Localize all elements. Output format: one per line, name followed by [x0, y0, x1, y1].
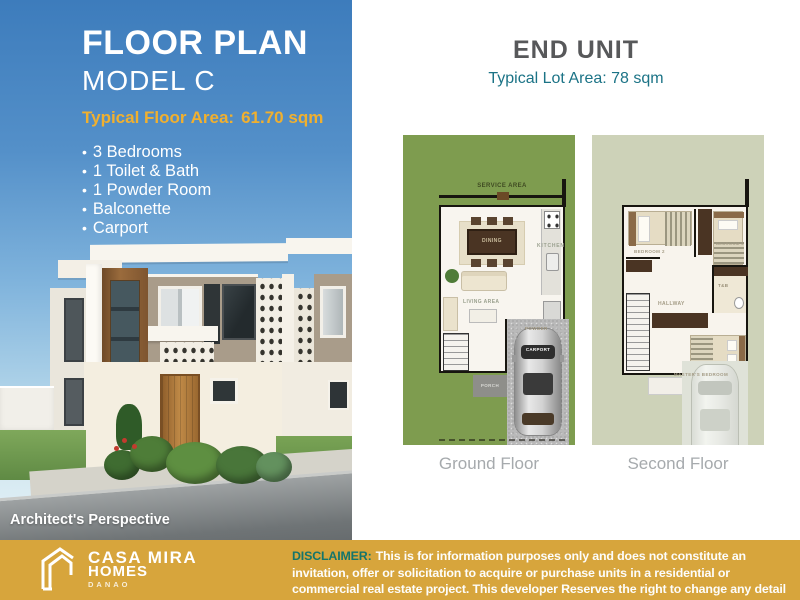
- house-perforated-screen: [294, 288, 314, 362]
- right-panel: END UNIT Typical Lot Area: 78 sqm SERVIC…: [352, 0, 800, 540]
- carport-gravel: CARPORT: [507, 319, 569, 445]
- wardrobe: [652, 313, 708, 328]
- car-mirror: [560, 355, 564, 362]
- left-panel: FLOOR PLAN MODEL C Typical Floor Area:61…: [0, 0, 352, 540]
- perimeter-fence: [0, 386, 54, 436]
- room-label-carport: CARPORT: [515, 347, 561, 352]
- feature-item: •3 Bedrooms: [82, 143, 323, 162]
- flyer-page: FLOOR PLAN MODEL C Typical Floor Area:61…: [0, 0, 800, 600]
- chair: [471, 259, 481, 267]
- feature-label: Balconette: [93, 200, 171, 218]
- house-logo-icon: [38, 545, 78, 593]
- feature-label: 1 Toilet & Bath: [93, 162, 199, 180]
- toilet: [734, 297, 744, 309]
- indoor-plant: [445, 269, 459, 283]
- property-line: [439, 439, 565, 441]
- brand-logo: CASA MIRA HOMES DANAO: [38, 545, 197, 593]
- service-gate: [497, 192, 509, 200]
- headboard: [714, 212, 744, 218]
- sofa: [461, 271, 507, 291]
- house-perforated-screen: [256, 278, 284, 370]
- room-label-tb: T&B: [718, 283, 728, 288]
- footer-bar: CASA MIRA HOMES DANAO DISCLAIMER:This is…: [0, 540, 800, 600]
- house-window: [64, 378, 84, 426]
- lot-area-subtitle: Typical Lot Area: 78 sqm: [352, 70, 800, 88]
- stairs: [626, 293, 650, 371]
- wall: [745, 179, 749, 207]
- car-roof: [523, 373, 553, 395]
- stairs: [443, 333, 469, 371]
- second-floor-plan: BEDROOM 2 BEDROOM 3 T&B HALLWAY: [592, 135, 764, 445]
- chair: [487, 259, 497, 267]
- room-label-master-bedroom: MASTER'S BEDROOM: [656, 372, 746, 377]
- feature-list: •3 Bedrooms •1 Toilet & Bath •1 Powder R…: [82, 143, 323, 238]
- feature-label: Carport: [93, 219, 148, 237]
- house-window: [328, 380, 349, 410]
- pillow: [718, 220, 738, 230]
- chair: [487, 217, 497, 225]
- porch: PORCH: [473, 375, 507, 397]
- model-name: MODEL C: [82, 65, 323, 97]
- feature-label: 1 Powder Room: [93, 181, 211, 199]
- headboard: [629, 212, 636, 246]
- room-label-service-area: SERVICE AREA: [439, 183, 565, 189]
- brand-location: DANAO: [88, 580, 197, 589]
- house-roof-neighbor: [286, 238, 352, 254]
- bullet: •: [82, 144, 87, 160]
- feature-item: •Balconette: [82, 200, 323, 219]
- feature-item: •1 Toilet & Bath: [82, 162, 323, 181]
- bush: [256, 452, 292, 482]
- floor-area: Typical Floor Area:61.70 sqm: [82, 108, 323, 128]
- car-roof: [700, 409, 730, 431]
- toilet-and-bath: T&B: [712, 267, 746, 313]
- room-label-bedroom2: BEDROOM 2: [634, 249, 665, 254]
- room-label-powder: POWDER: [525, 326, 548, 331]
- car-windshield: [698, 381, 732, 395]
- room-label-hallway: HALLWAY: [658, 301, 685, 307]
- bullet: •: [82, 163, 87, 179]
- car-mirror: [512, 355, 516, 362]
- stove: [544, 211, 560, 229]
- wall: [626, 257, 660, 259]
- floor-area-value: 61.70 sqm: [241, 108, 323, 127]
- blanket: [665, 212, 691, 246]
- unit-type-title: END UNIT: [352, 36, 800, 65]
- coffee-table: [469, 309, 497, 323]
- architects-perspective-caption: Architect's Perspective: [10, 512, 170, 528]
- end-unit-header: END UNIT Typical Lot Area: 78 sqm: [352, 36, 800, 88]
- kitchen-sink: [546, 253, 559, 271]
- wall: [694, 209, 696, 257]
- house-window: [222, 284, 256, 340]
- pillow: [727, 340, 737, 351]
- room-label-kitchen: KITCHEN: [537, 243, 565, 249]
- feature-item: •Carport: [82, 219, 323, 238]
- house-balconette: [144, 326, 218, 341]
- bed: [628, 211, 692, 245]
- second-floor-interior: BEDROOM 2 BEDROOM 3 T&B HALLWAY: [622, 205, 748, 375]
- floor-plan-info: FLOOR PLAN MODEL C Typical Floor Area:61…: [82, 26, 323, 238]
- bed: [713, 211, 743, 265]
- flower: [114, 446, 119, 451]
- ground-floor-label: Ground Floor: [403, 454, 575, 474]
- room-label-porch: PORCH: [473, 383, 507, 388]
- pillow: [638, 216, 650, 242]
- wardrobe: [698, 209, 712, 255]
- house-window: [210, 378, 238, 404]
- disclaimer: DISCLAIMER:This is for information purpo…: [292, 548, 794, 600]
- cabinet: [626, 260, 652, 272]
- room-label-living-area: LIVING AREA: [463, 299, 499, 305]
- feature-item: •1 Powder Room: [82, 181, 323, 200]
- ground-floor-plan: SERVICE AREA DINING KITCHEN: [403, 135, 575, 445]
- chair: [503, 259, 513, 267]
- brand-sub: HOMES: [88, 565, 197, 579]
- disclaimer-label: DISCLAIMER:: [292, 549, 372, 563]
- car-rear: [522, 413, 554, 425]
- second-floor-label: Second Floor: [592, 454, 764, 474]
- bullet: •: [82, 201, 87, 217]
- bullet: •: [82, 182, 87, 198]
- chair: [503, 217, 513, 225]
- room-label-dining: DINING: [467, 238, 517, 244]
- flower: [122, 438, 127, 443]
- armchair: [443, 297, 458, 331]
- page-title: FLOOR PLAN: [82, 26, 323, 62]
- house-window: [64, 298, 84, 362]
- car-top-view: CARPORT: [515, 329, 561, 435]
- car-top-view-faded: [692, 365, 738, 445]
- bullet: •: [82, 220, 87, 236]
- brand-text: CASA MIRA HOMES DANAO: [88, 550, 197, 589]
- house-render: [0, 238, 352, 540]
- chair: [471, 217, 481, 225]
- cabinet: [714, 267, 748, 276]
- feature-label: 3 Bedrooms: [93, 143, 182, 161]
- house-window: [320, 286, 346, 338]
- house-pier: [282, 274, 294, 370]
- room-label-bedroom3: BEDROOM 3: [716, 241, 744, 246]
- floor-area-label: Typical Floor Area:: [82, 108, 234, 127]
- flower: [132, 444, 137, 449]
